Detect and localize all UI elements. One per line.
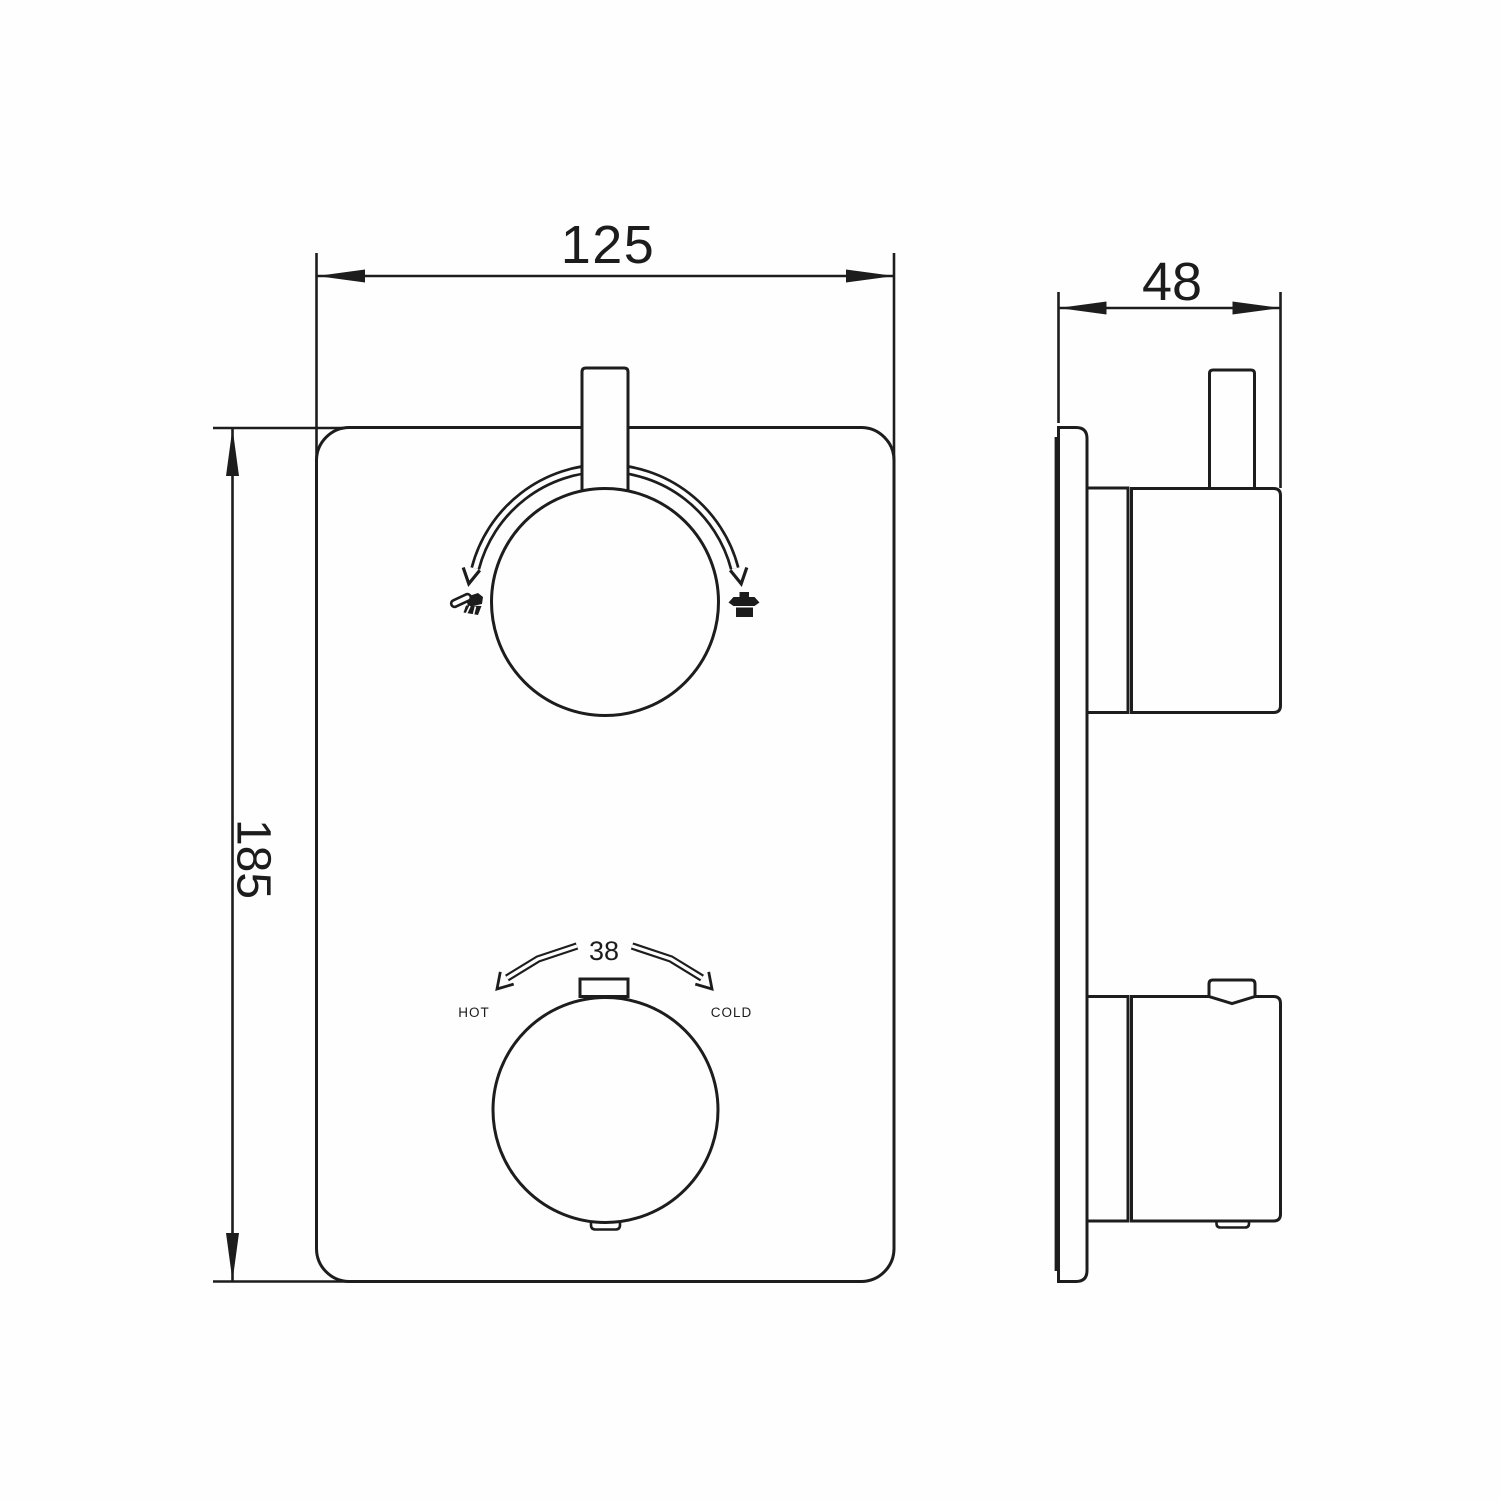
svg-text:48: 48: [1142, 252, 1202, 312]
svg-text:COLD: COLD: [711, 1005, 753, 1020]
svg-text:38: 38: [589, 936, 619, 966]
svg-text:125: 125: [561, 215, 656, 275]
svg-text:185: 185: [227, 819, 280, 899]
svg-text:HOT: HOT: [458, 1005, 490, 1020]
